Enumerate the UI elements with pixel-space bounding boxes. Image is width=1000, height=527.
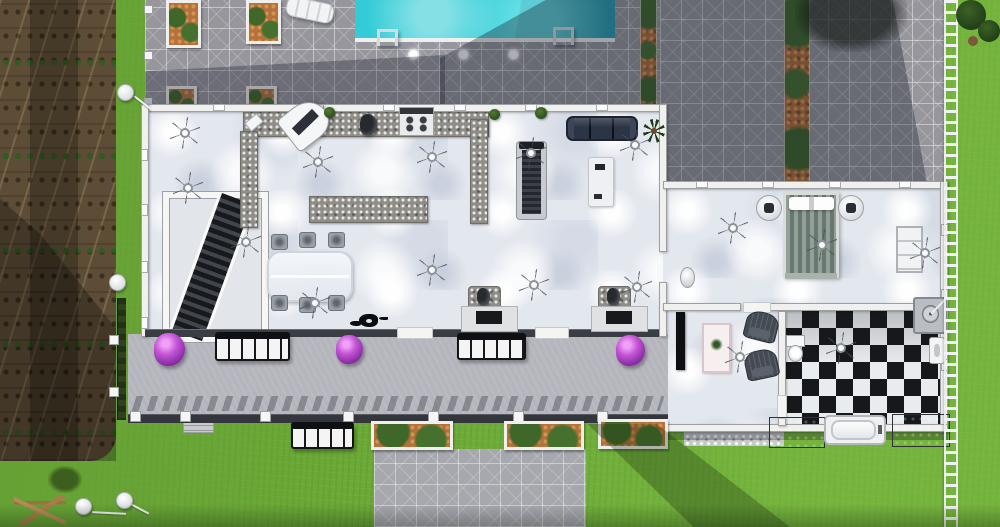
ceiling-light[interactable] bbox=[416, 141, 448, 173]
gargoyle-statue[interactable] bbox=[360, 114, 377, 135]
ceiling-light[interactable] bbox=[621, 271, 653, 303]
stove[interactable] bbox=[399, 107, 434, 136]
window-tick bbox=[830, 182, 840, 187]
planter-box[interactable] bbox=[371, 421, 453, 450]
fence-post bbox=[110, 388, 118, 396]
fence-post bbox=[110, 336, 118, 344]
route-marker[interactable] bbox=[109, 274, 126, 291]
wall bbox=[141, 104, 149, 337]
tree-trunk bbox=[968, 36, 978, 46]
bar-counter[interactable] bbox=[470, 119, 488, 224]
shadow-bottom-band bbox=[0, 504, 1000, 527]
lot-view[interactable] bbox=[0, 0, 1000, 527]
window-tick bbox=[900, 182, 910, 187]
bar-counter[interactable] bbox=[240, 131, 258, 228]
dining-chair[interactable] bbox=[328, 232, 345, 248]
ceiling-light[interactable] bbox=[169, 117, 201, 149]
pool-ladder[interactable] bbox=[377, 29, 398, 46]
corner-shower[interactable] bbox=[913, 297, 947, 334]
dining-chair[interactable] bbox=[299, 232, 316, 248]
window-tick bbox=[455, 105, 465, 110]
planter-box[interactable] bbox=[246, 0, 281, 44]
fireplace[interactable] bbox=[591, 306, 648, 332]
window-tick bbox=[214, 105, 224, 110]
nightstand[interactable] bbox=[838, 195, 864, 221]
window-tick bbox=[526, 105, 536, 110]
lattice-fence[interactable] bbox=[944, 0, 958, 527]
deck-post bbox=[145, 6, 152, 13]
counter-plant[interactable] bbox=[324, 107, 335, 118]
railing-shadow bbox=[132, 396, 665, 411]
ceiling-fan[interactable] bbox=[825, 332, 857, 364]
door-threshold bbox=[536, 328, 568, 338]
door-threshold bbox=[398, 328, 432, 338]
ceiling-light[interactable] bbox=[518, 269, 550, 301]
window-tick bbox=[142, 205, 147, 215]
roof-awning bbox=[892, 414, 950, 447]
door-threshold bbox=[778, 396, 786, 418]
counter-plant[interactable] bbox=[535, 107, 547, 119]
dining-chair[interactable] bbox=[271, 295, 288, 311]
window-tick bbox=[597, 105, 607, 110]
bar-counter[interactable] bbox=[309, 196, 428, 223]
ceiling-light[interactable] bbox=[299, 287, 331, 319]
toilet[interactable] bbox=[786, 335, 803, 360]
garden-bench[interactable] bbox=[457, 335, 526, 360]
railing-post bbox=[181, 412, 190, 421]
chimney-statue[interactable] bbox=[477, 288, 490, 305]
window-tick bbox=[142, 318, 147, 328]
window-tick bbox=[697, 182, 707, 187]
garden-bench[interactable] bbox=[291, 424, 354, 449]
ceiling-light[interactable] bbox=[416, 254, 448, 286]
ceiling-light[interactable] bbox=[515, 137, 547, 169]
counter-plant[interactable] bbox=[489, 109, 500, 120]
route-marker[interactable] bbox=[117, 84, 134, 101]
bathtub[interactable] bbox=[824, 415, 886, 445]
pet-dog[interactable] bbox=[346, 310, 390, 332]
ceiling-light[interactable] bbox=[806, 229, 838, 261]
railing-post bbox=[429, 412, 438, 421]
garden-bench[interactable] bbox=[215, 334, 290, 361]
roof-awning bbox=[769, 417, 825, 448]
railing-post bbox=[131, 412, 140, 421]
window-tick bbox=[763, 182, 773, 187]
railing-post bbox=[514, 412, 523, 421]
fireplace[interactable] bbox=[461, 306, 518, 332]
ceiling-fan[interactable] bbox=[909, 237, 941, 269]
ceiling-light[interactable] bbox=[302, 146, 334, 178]
railing-post bbox=[344, 412, 353, 421]
ceiling-light[interactable] bbox=[172, 172, 204, 204]
wall-sink[interactable] bbox=[929, 337, 945, 364]
dining-chair[interactable] bbox=[271, 234, 288, 250]
ceiling-fan[interactable] bbox=[724, 341, 756, 373]
desk[interactable] bbox=[588, 157, 614, 207]
ceiling-light[interactable] bbox=[230, 226, 262, 258]
window-tick bbox=[384, 105, 394, 110]
ceiling-light[interactable] bbox=[619, 129, 651, 161]
nightstand[interactable] bbox=[756, 195, 782, 221]
window-tick bbox=[142, 150, 147, 160]
shadow-blob bbox=[48, 466, 82, 493]
chimney-statue[interactable] bbox=[607, 288, 620, 305]
railing-post bbox=[261, 412, 270, 421]
wall bbox=[663, 303, 741, 311]
planter-box[interactable] bbox=[504, 421, 584, 450]
tree-bush[interactable] bbox=[978, 20, 1000, 42]
pedestal-sink[interactable] bbox=[680, 267, 695, 288]
ceiling-fan[interactable] bbox=[717, 212, 749, 244]
hedge-fence[interactable] bbox=[117, 298, 126, 420]
wall-tv[interactable] bbox=[676, 312, 685, 370]
planter-box[interactable] bbox=[166, 0, 201, 48]
window-tick bbox=[142, 262, 147, 272]
shadow-tree-canopy bbox=[795, 0, 907, 52]
deck-post bbox=[145, 52, 152, 59]
